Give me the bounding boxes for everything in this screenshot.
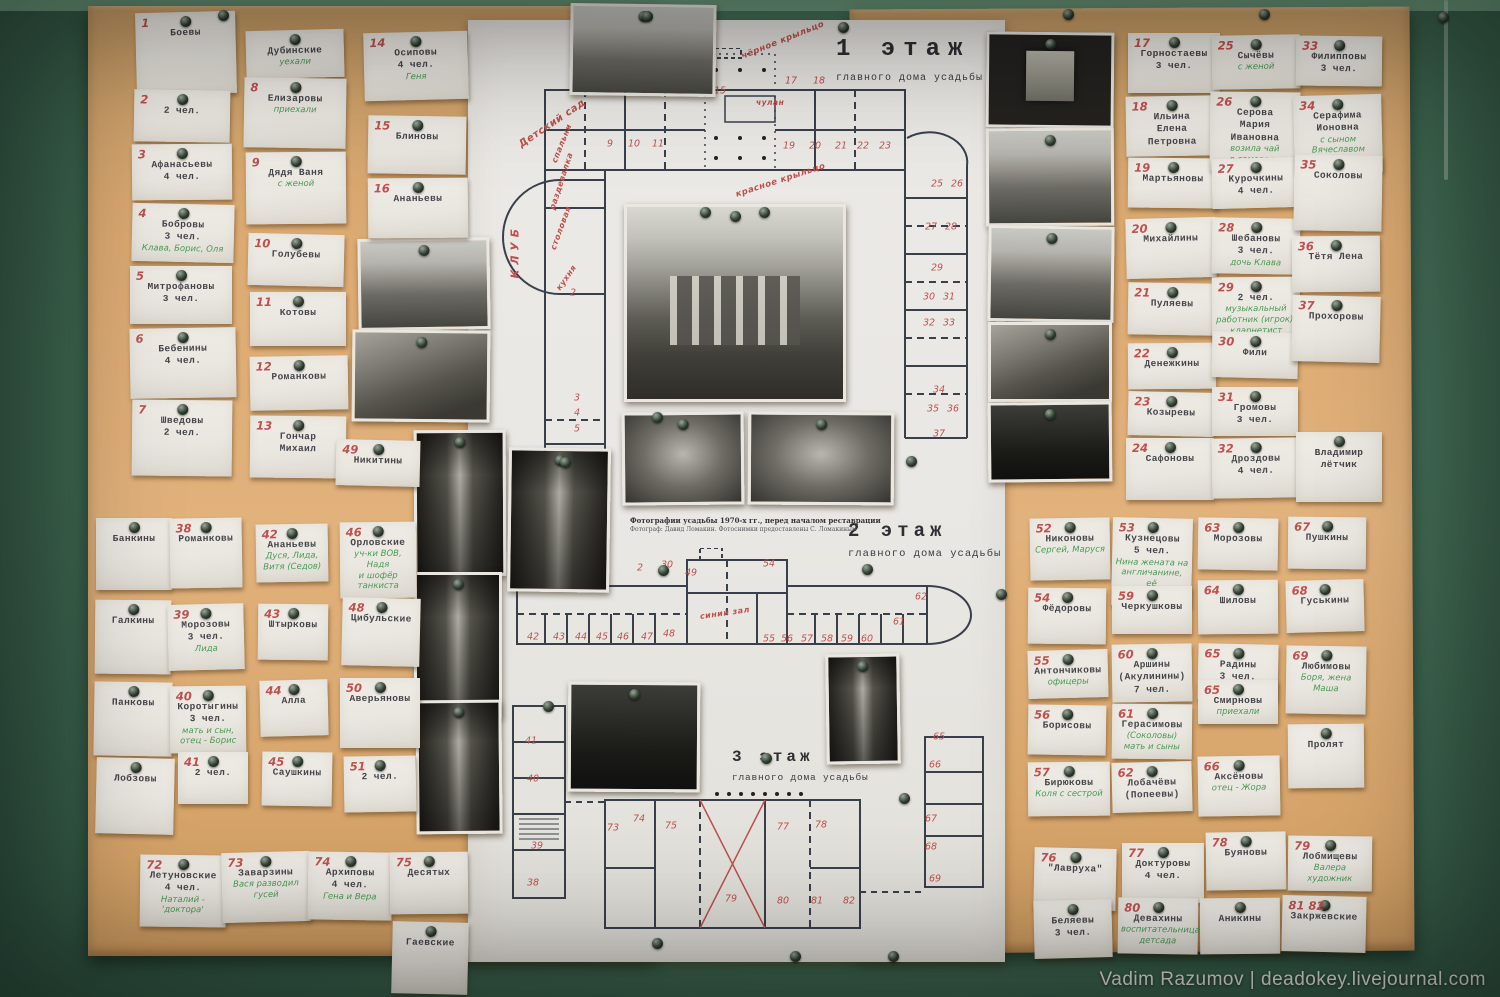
pin-icon — [899, 793, 910, 804]
pin-icon — [700, 207, 711, 218]
pin-icon — [560, 457, 571, 468]
pin-icon — [761, 753, 772, 764]
pin-icon — [838, 22, 849, 33]
pin-icon — [652, 938, 663, 949]
pin-icon — [996, 589, 1007, 600]
pins-layer — [0, 0, 1500, 997]
pin-icon — [790, 951, 801, 962]
photograph-of-board: 1 этаж главного дома усадьбы 2 этаж глав… — [0, 0, 1500, 997]
pin-icon — [1259, 9, 1270, 20]
pin-icon — [888, 951, 899, 962]
pin-icon — [1438, 12, 1449, 23]
pin-icon — [218, 10, 229, 21]
pin-icon — [1063, 9, 1074, 20]
pin-icon — [759, 207, 770, 218]
pin-icon — [642, 11, 653, 22]
pin-icon — [652, 412, 663, 423]
pin-icon — [906, 456, 917, 467]
pin-icon — [658, 565, 669, 576]
pin-icon — [543, 701, 554, 712]
watermark: Vadim Razumov | deadokey.livejournal.com — [1100, 969, 1486, 991]
pin-icon — [862, 564, 873, 575]
